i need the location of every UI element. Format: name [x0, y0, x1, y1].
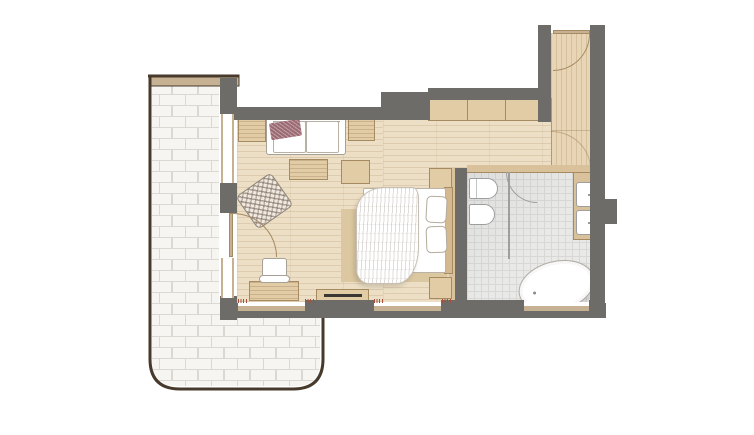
toilet: [469, 178, 498, 199]
nightstand-bottom: [429, 277, 452, 299]
desk-chair-back: [259, 275, 290, 283]
coffee-table: [289, 159, 328, 180]
bidet: [469, 204, 495, 225]
dimension-mark: [238, 299, 248, 303]
window-bottom-middle-sill: [374, 306, 441, 311]
duvet: [356, 187, 419, 284]
wall-bottom-segment-2: [441, 300, 524, 318]
wardrobe-divider-1: [467, 98, 468, 121]
desk: [249, 281, 299, 301]
dimension-mark: [374, 299, 384, 303]
wall-corridor-left: [538, 25, 551, 122]
wall-bottom-segment-1: [305, 300, 374, 318]
bench: [341, 160, 370, 184]
bathtub-drain: [533, 291, 537, 295]
wall-top-step: [381, 92, 430, 120]
wall-niche: [605, 199, 617, 224]
wall-right: [590, 25, 605, 318]
dimension-mark: [442, 299, 452, 303]
balcony-door-leaf: [229, 213, 233, 257]
wall-top-left-segment: [233, 107, 383, 120]
wardrobe: [428, 97, 540, 121]
toilet-tank-line: [476, 179, 477, 198]
window-left-lower: [221, 258, 234, 298]
bathroom-window-sill: [524, 306, 589, 311]
wall-top-right-segment: [428, 88, 540, 100]
window-bottom-left-sill: [238, 306, 305, 311]
wall-left-middle: [220, 183, 237, 213]
floor-plan: [0, 0, 754, 435]
wall-bathroom-partition: [455, 168, 467, 303]
entry-door-leaf: [553, 30, 590, 34]
pillow-bottom: [426, 226, 448, 254]
wall-bottom-corner: [589, 300, 605, 318]
tv: [324, 294, 362, 297]
dimension-mark: [305, 299, 315, 303]
corridor-closet-line: [551, 130, 591, 131]
window-left-upper: [221, 114, 234, 183]
wardrobe-divider-2: [505, 98, 506, 121]
sofa-cushion-right: [306, 121, 339, 153]
pillow-top: [425, 195, 447, 223]
